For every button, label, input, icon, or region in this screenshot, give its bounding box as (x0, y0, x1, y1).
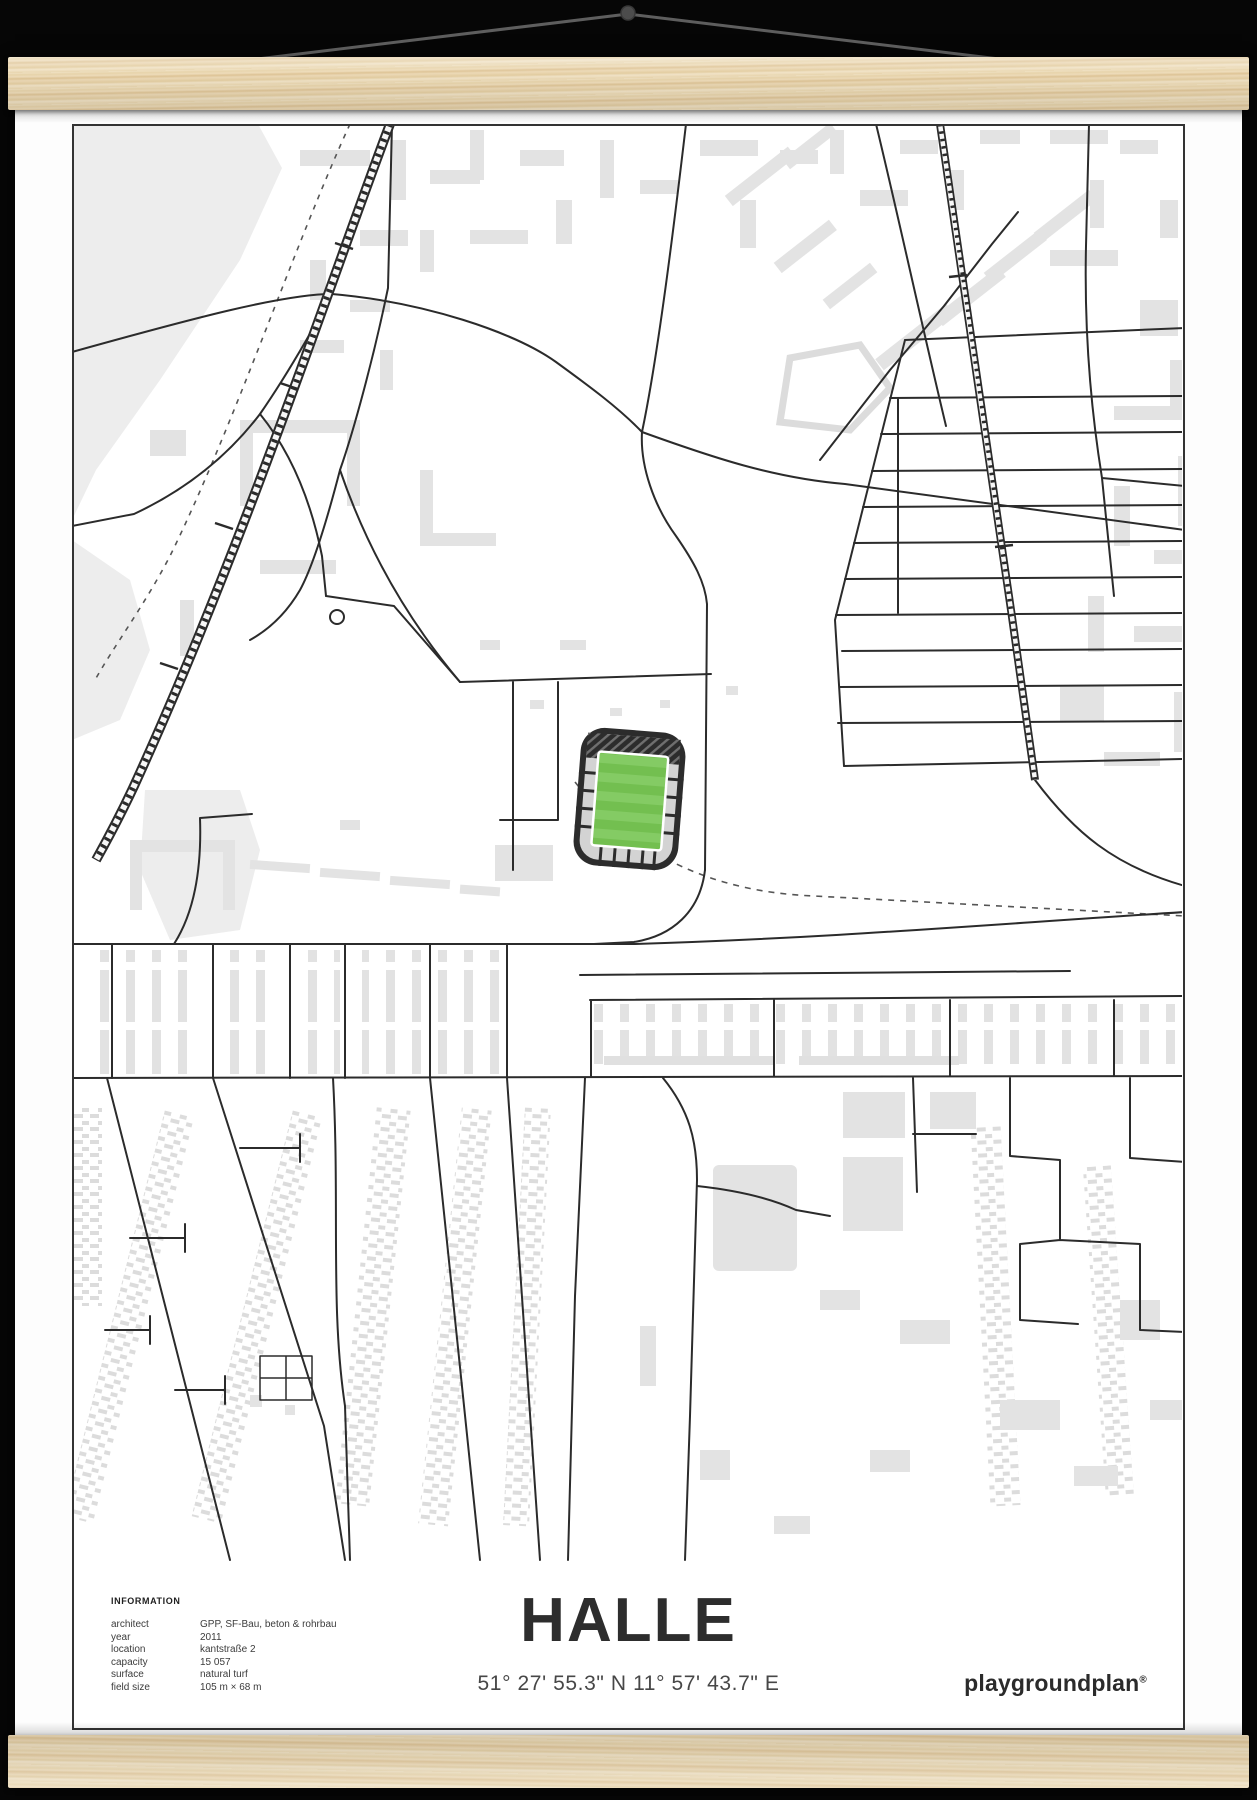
terraced-housing-zones (94, 950, 1180, 1074)
info-label: capacity (111, 1657, 200, 1670)
map-frame: INFORMATION architectGPP, SF-Bau, beton … (72, 124, 1185, 1730)
park-areas (74, 126, 282, 940)
stadium-pitch (591, 751, 668, 850)
poster-product-photo: INFORMATION architectGPP, SF-Bau, beton … (0, 0, 1257, 1800)
brand-text: playgroundplan (964, 1670, 1139, 1696)
registered-mark: ® (1139, 1674, 1147, 1685)
poster: INFORMATION architectGPP, SF-Bau, beton … (15, 70, 1242, 1760)
info-row: capacity15 057 (111, 1657, 337, 1670)
nail-icon (621, 6, 635, 20)
poster-hanger-top-bar (8, 57, 1249, 110)
outlined-building-block (780, 345, 890, 430)
poster-hanger-bottom-bar (8, 1735, 1249, 1788)
stadium-marker (572, 726, 688, 872)
poster-title: HALLE (74, 1590, 1183, 1652)
allotment-garden-zones (74, 1105, 1134, 1526)
bar-shadow-top (15, 110, 1242, 123)
brand-logo: playgroundplan® (964, 1670, 1147, 1697)
info-value: 15 057 (200, 1657, 231, 1668)
city-map (74, 126, 1183, 1728)
